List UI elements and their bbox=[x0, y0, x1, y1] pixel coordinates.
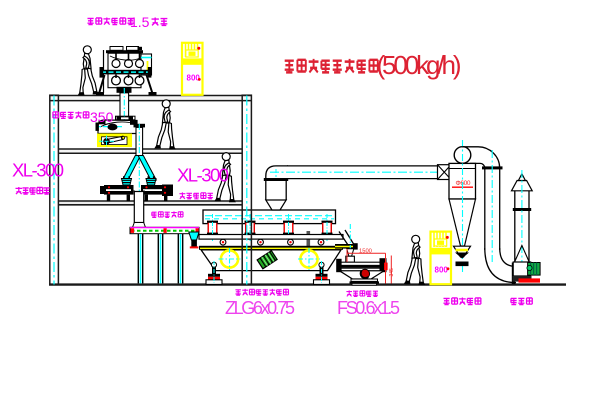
svg-text:350: 350 bbox=[90, 109, 114, 125]
svg-text:800: 800 bbox=[435, 266, 449, 275]
svg-text:800: 800 bbox=[187, 74, 201, 83]
svg-text:ZLG6x0.75: ZLG6x0.75 bbox=[225, 298, 295, 318]
svg-text:1.5: 1.5 bbox=[130, 14, 150, 30]
svg-text:XL-300: XL-300 bbox=[12, 160, 64, 181]
svg-text:1500: 1500 bbox=[359, 248, 372, 254]
svg-text:XL-300: XL-300 bbox=[177, 165, 229, 186]
svg-text:Φ600: Φ600 bbox=[456, 180, 471, 187]
svg-text:FS0.6x1.5: FS0.6x1.5 bbox=[337, 298, 400, 318]
svg-text:345: 345 bbox=[389, 268, 395, 277]
svg-text:(500kg/h): (500kg/h) bbox=[377, 50, 462, 80]
